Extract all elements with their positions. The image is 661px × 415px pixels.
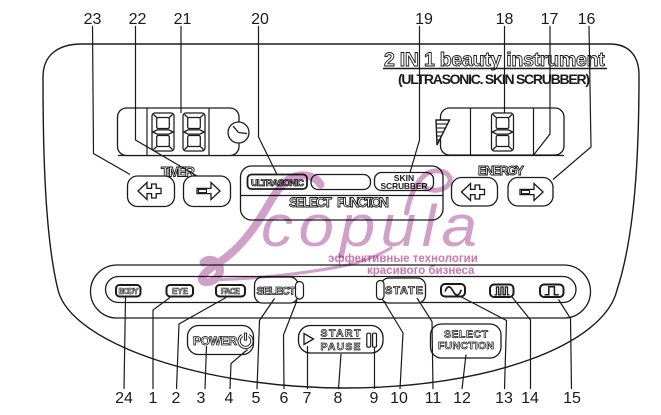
svg-text:copula: copula	[261, 193, 483, 259]
